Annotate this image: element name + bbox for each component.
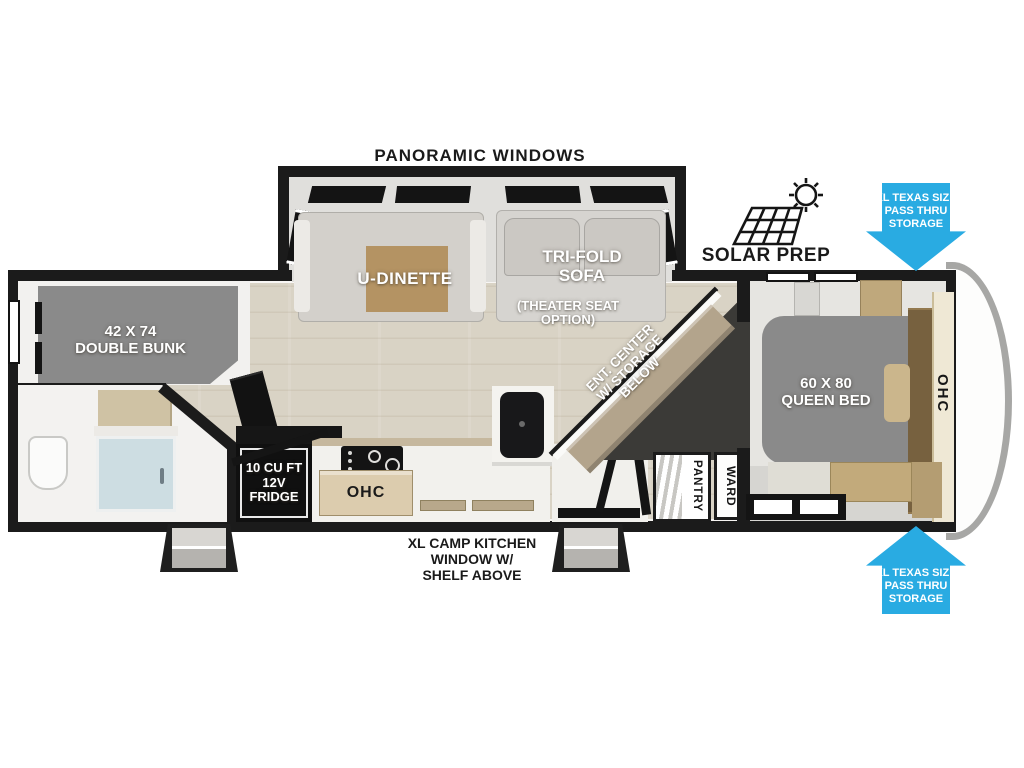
- pantry-shelves-icon: [656, 455, 682, 519]
- bedroom-window-pane: [754, 500, 792, 514]
- bedroom-top-cabinet-tan: [860, 280, 902, 320]
- slideout-window-icon: [590, 186, 668, 203]
- entry-step-tread: [172, 528, 226, 568]
- double-bunk-line1: 42 X 74: [105, 323, 157, 340]
- pass-thru-line3: STORAGE: [889, 593, 943, 605]
- entry-step-tread: [564, 528, 618, 568]
- slideout-window-icon: [505, 186, 581, 203]
- pass-thru-line3: STORAGE: [889, 218, 943, 230]
- tri-fold-line2: SOFA: [559, 266, 605, 285]
- bedroom-window-pane: [800, 500, 838, 514]
- pass-thru-arrow-down: XL TEXAS SIZE PASS THRU STORAGE: [866, 183, 966, 271]
- tri-fold-line1: TRI-FOLD: [542, 247, 621, 266]
- queen-bed-line1: 60 X 80: [800, 375, 852, 392]
- camp-kitchen-line3: SHELF ABOVE: [422, 567, 521, 583]
- bedroom-window-icon: [766, 272, 810, 282]
- shower-handle-icon: [160, 468, 164, 484]
- bedroom-window-icon: [814, 272, 858, 282]
- theater-line1: (THEATER SEAT: [517, 298, 619, 313]
- panoramic-windows-label: PANORAMIC WINDOWS: [330, 147, 630, 165]
- counter-trim: [420, 500, 466, 511]
- bathroom-counter: [94, 426, 178, 436]
- floorplan-canvas: PANORAMIC WINDOWS 42 X 74 DOUBLE BUNK 10…: [0, 0, 1024, 768]
- slideout-window-icon: [308, 186, 386, 203]
- fridge-line1: 10 CU FT: [246, 461, 302, 476]
- fridge-line3: FRIDGE: [249, 490, 298, 505]
- bed-platform: [768, 462, 830, 498]
- faucet-icon: [519, 421, 525, 427]
- double-bunk-label: 42 X 74 DOUBLE BUNK: [48, 324, 213, 357]
- bedroom-wall-stub-top: [737, 276, 750, 322]
- knob-icon: [348, 451, 352, 455]
- bedroom-top-cabinet-white: [794, 282, 820, 316]
- u-dinette-label: U-DINETTE: [320, 270, 490, 289]
- bunk-window-frame-icon: [35, 302, 42, 334]
- burner-icon: [368, 450, 381, 463]
- kitchen-ohc-label: OHC: [347, 484, 386, 501]
- queen-bed-label: 60 X 80 QUEEN BED: [760, 376, 892, 409]
- theater-seat-label: (THEATER SEAT OPTION): [488, 299, 648, 328]
- bunk-window-frame-icon: [35, 342, 42, 374]
- tri-fold-sofa-label: TRI-FOLD SOFA: [506, 248, 658, 285]
- camp-kitchen-line1: XL CAMP KITCHEN: [408, 535, 537, 551]
- shower: [96, 436, 176, 512]
- theater-line2: OPTION): [541, 312, 595, 327]
- double-bunk-line2: DOUBLE BUNK: [75, 340, 186, 357]
- pass-thru-line2: PASS THRU: [885, 205, 948, 217]
- pantry-cabinet: PANTRY: [653, 452, 711, 522]
- camp-kitchen-label: XL CAMP KITCHEN WINDOW W/ SHELF ABOVE: [388, 536, 556, 584]
- u-dinette-backrest: [470, 220, 486, 312]
- counter-trim: [472, 500, 534, 511]
- bathroom-cabinet: [98, 390, 172, 430]
- solar-panel-icon: [728, 176, 828, 248]
- bunk-window-icon: [8, 300, 20, 364]
- queen-bed-line2: QUEEN BED: [781, 392, 870, 409]
- kitchen-ohc: OHC: [319, 470, 413, 516]
- pass-thru-line1: XL TEXAS SIZE: [875, 192, 956, 204]
- pantry-label: PANTRY: [691, 460, 703, 512]
- ward-label: WARD: [724, 466, 738, 507]
- slideout-window-icon: [395, 186, 471, 203]
- knob-icon: [348, 459, 352, 463]
- u-dinette-backrest: [294, 220, 310, 312]
- toilet: [28, 436, 68, 490]
- pass-thru-line2: PASS THRU: [885, 580, 948, 592]
- camp-kitchen-line2: WINDOW W/: [431, 551, 513, 567]
- bedroom-ohc-label: OHC: [934, 374, 951, 413]
- solar-prep-label: SOLAR PREP: [690, 246, 842, 267]
- pass-thru-line1: XL TEXAS SIZE: [875, 567, 956, 579]
- bedroom-corner-cabinet: [912, 462, 942, 518]
